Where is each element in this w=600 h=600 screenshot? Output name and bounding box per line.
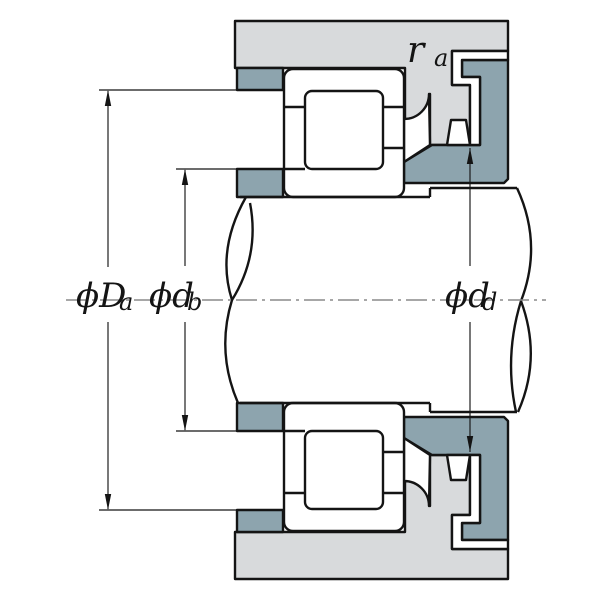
diagram-canvas: ϕD a ϕd b ϕd d r a [0, 0, 600, 600]
upper-half [235, 21, 517, 197]
lower-half [235, 403, 517, 579]
label-ra-sub: a [434, 44, 448, 72]
label-Da-sub: a [119, 288, 133, 316]
label-dd-sub: d [482, 288, 497, 316]
label-db-sub: b [187, 288, 202, 316]
label-ra: r [407, 30, 426, 71]
shaft-break-right-arc2 [518, 301, 531, 412]
bearing-mounting-diagram: ϕD a ϕd b ϕd d r a [0, 0, 600, 600]
